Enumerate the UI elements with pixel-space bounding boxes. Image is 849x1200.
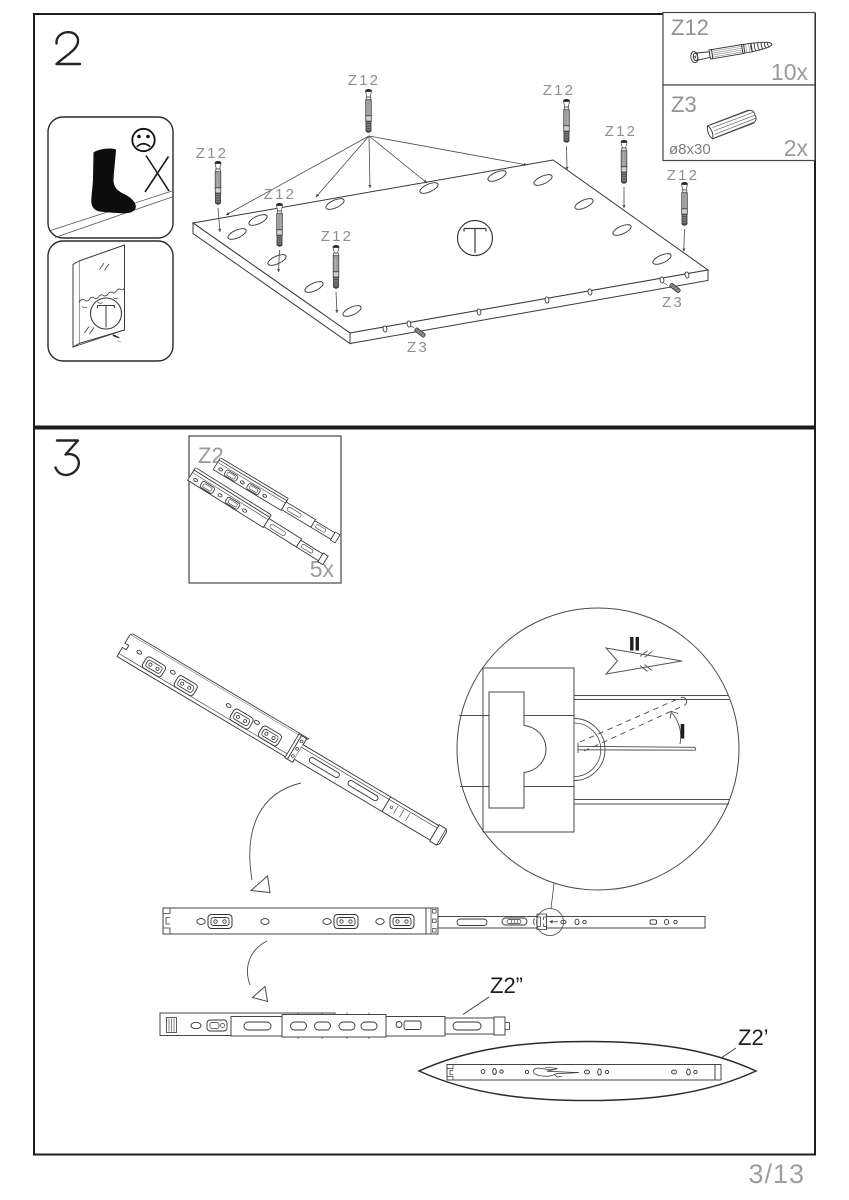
- svg-text:Z12: Z12: [196, 145, 228, 162]
- svg-text:10x: 10x: [771, 59, 809, 85]
- svg-text:Z12: Z12: [348, 72, 380, 89]
- svg-text:Z12: Z12: [605, 123, 637, 140]
- svg-text:2x: 2x: [784, 135, 809, 161]
- svg-text:Z12: Z12: [543, 82, 575, 99]
- svg-text:Z12: Z12: [667, 167, 699, 184]
- svg-text:Z12: Z12: [321, 228, 353, 245]
- svg-text:Z12: Z12: [671, 15, 709, 40]
- svg-text:Z3: Z3: [662, 294, 684, 311]
- svg-text:3/13: 3/13: [748, 1159, 805, 1189]
- svg-text:Z12: Z12: [264, 186, 296, 203]
- svg-text:ø8x30: ø8x30: [669, 141, 711, 158]
- svg-text:Z2’: Z2’: [738, 1025, 769, 1050]
- svg-text:Z3: Z3: [671, 92, 697, 117]
- svg-text:Z2”: Z2”: [490, 973, 523, 998]
- svg-text:Z3: Z3: [407, 339, 429, 356]
